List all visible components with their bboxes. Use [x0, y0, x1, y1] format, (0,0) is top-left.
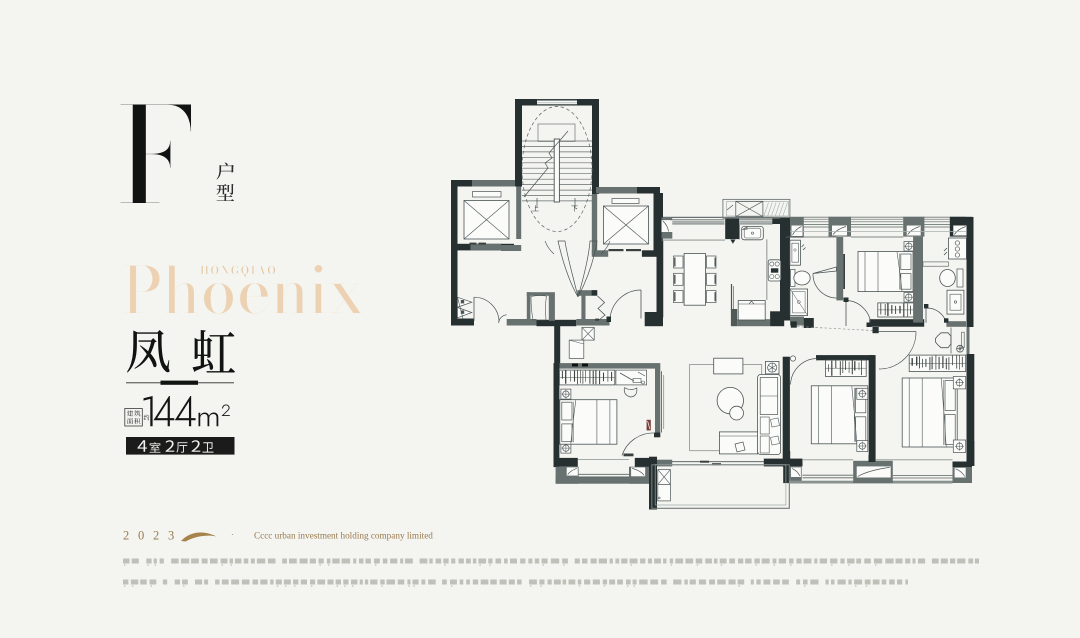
svg-text:0: 0 [138, 529, 144, 543]
svg-text:2: 2 [153, 529, 159, 543]
svg-text:Cccc urban investment holding: Cccc urban investment holding company li… [254, 531, 433, 541]
svg-text:·: · [231, 531, 234, 540]
svg-text:3: 3 [168, 529, 174, 543]
svg-text:2: 2 [123, 529, 129, 543]
